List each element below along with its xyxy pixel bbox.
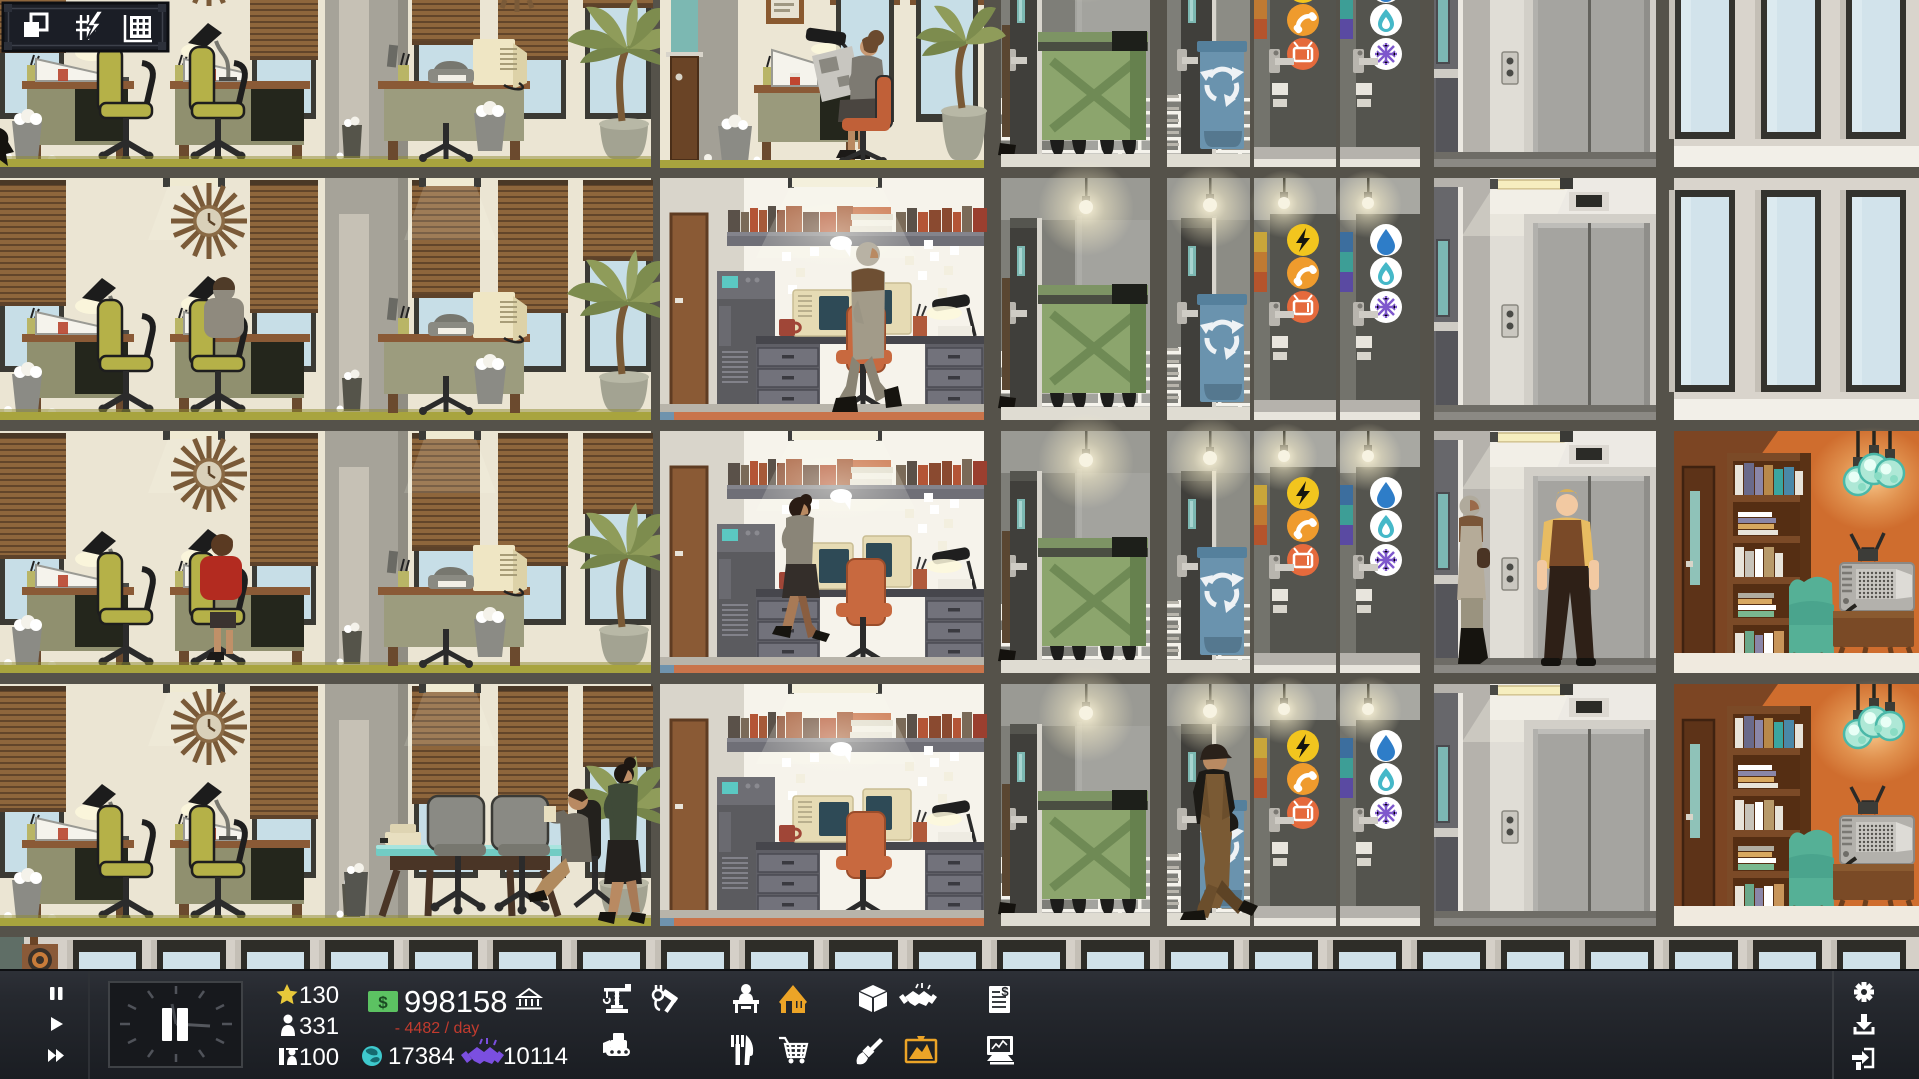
svg-text:998158: 998158 [404, 984, 507, 1019]
svg-text:130: 130 [299, 982, 339, 1009]
svg-text:$: $ [1001, 984, 1009, 999]
svg-text:17384: 17384 [388, 1043, 455, 1070]
svg-text:$: $ [378, 993, 388, 1012]
svg-text:10114: 10114 [503, 1043, 568, 1070]
svg-text:- 4482 / day: - 4482 / day [395, 1020, 480, 1037]
svg-text:331: 331 [299, 1013, 339, 1040]
svg-text:100: 100 [299, 1044, 339, 1071]
